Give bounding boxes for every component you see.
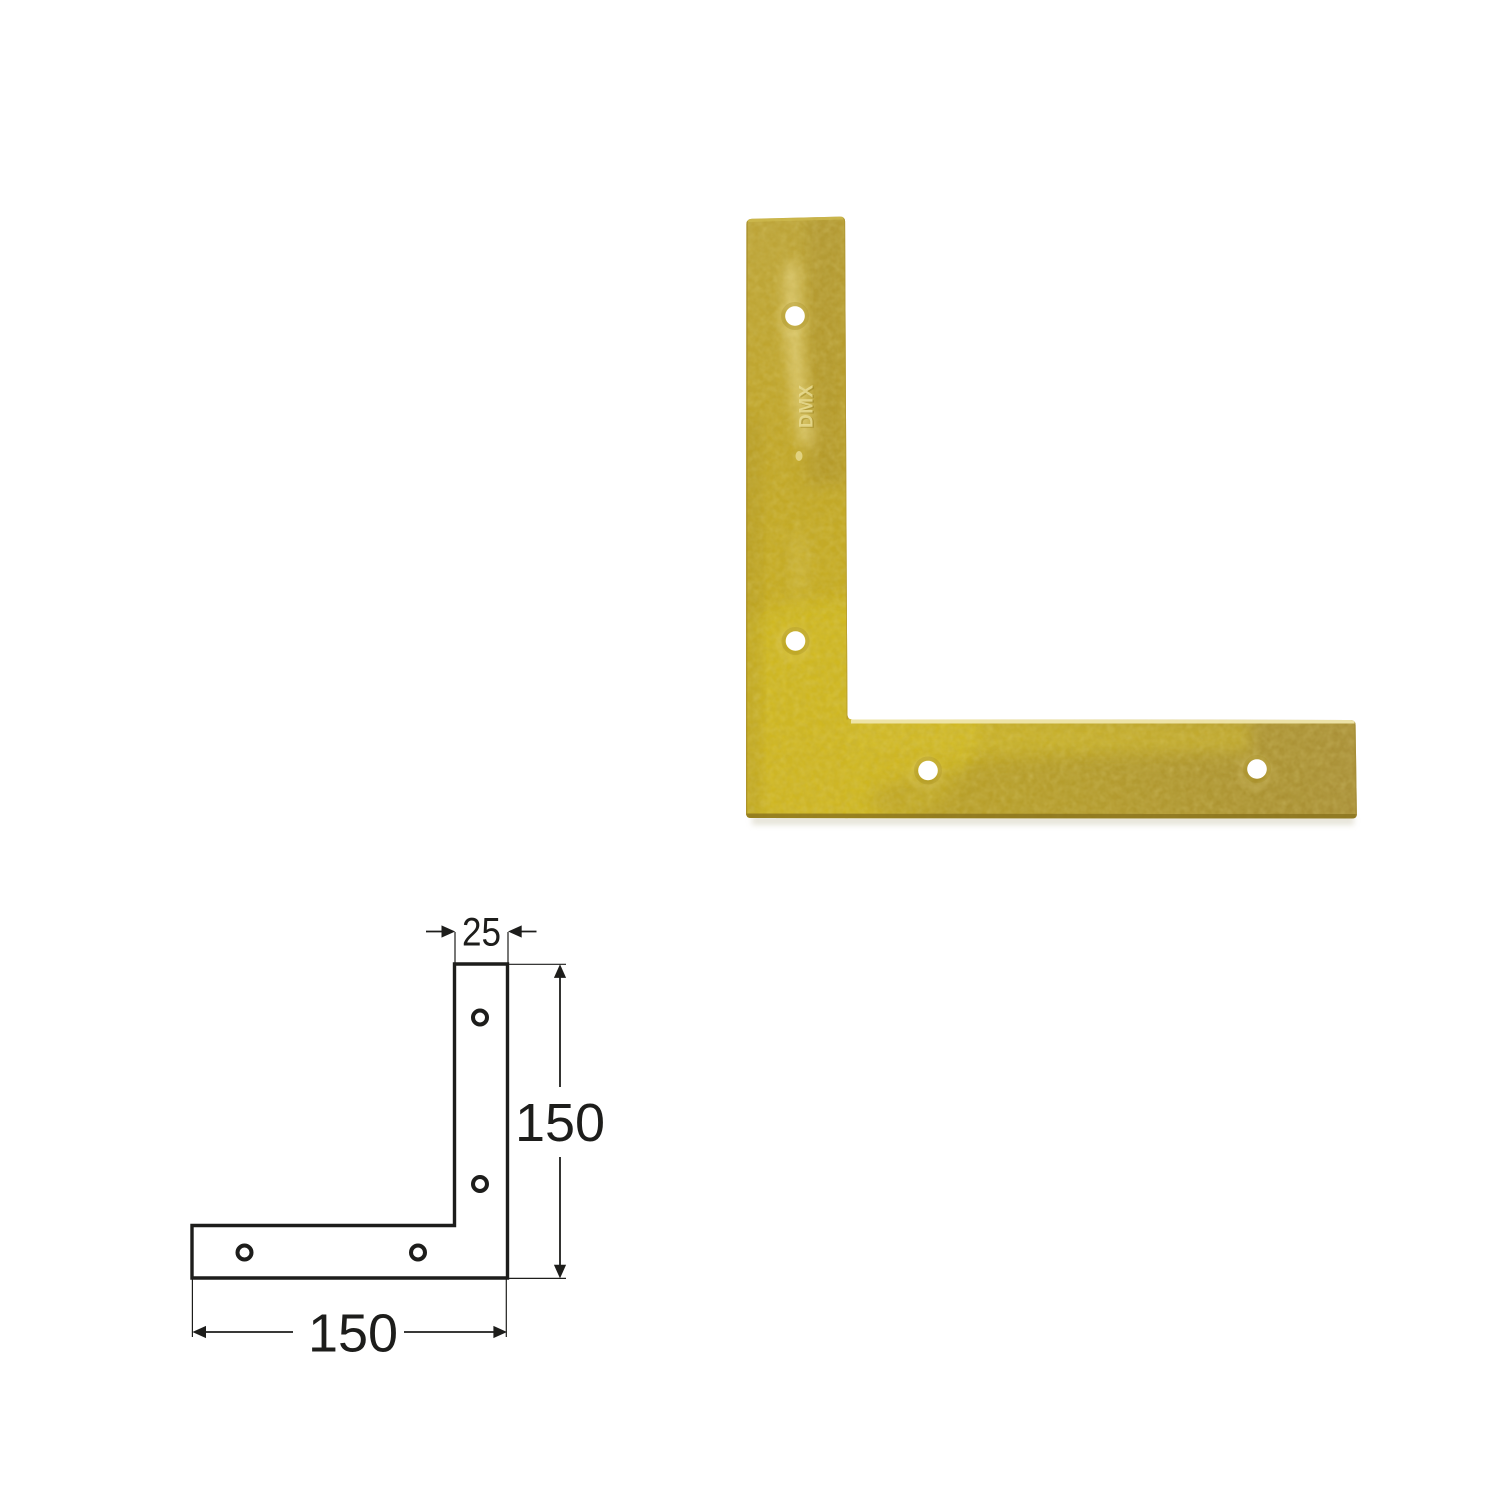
svg-text:150: 150 <box>515 1093 605 1153</box>
svg-text:25: 25 <box>462 911 501 955</box>
svg-text:DMX: DMX <box>797 384 818 428</box>
svg-text:150: 150 <box>308 1304 398 1364</box>
